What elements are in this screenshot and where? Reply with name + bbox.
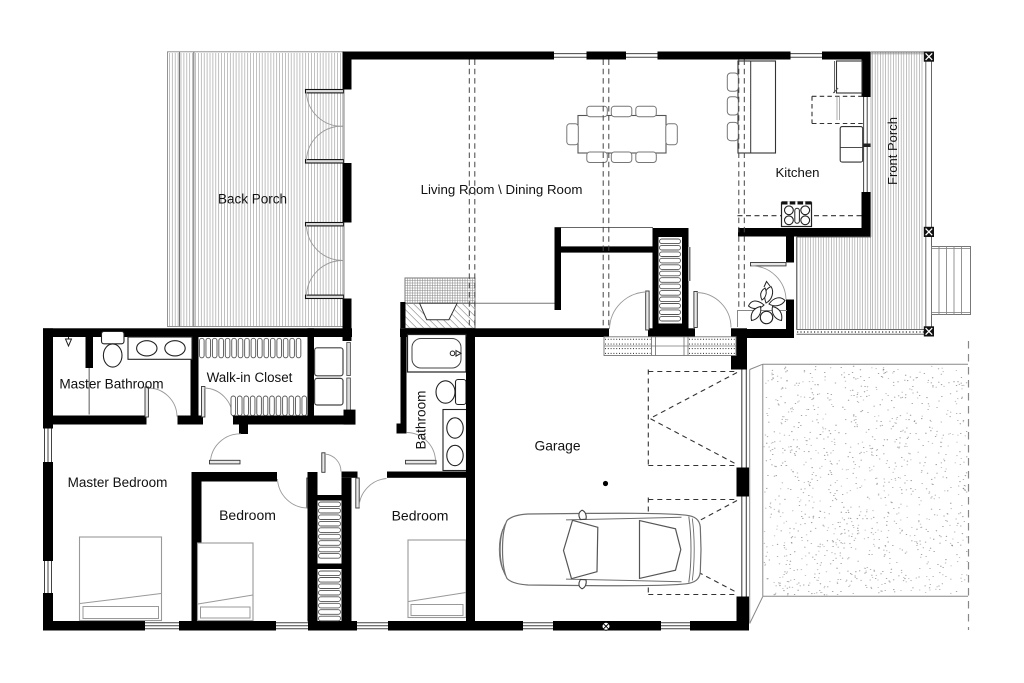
svg-text:Walk-in Closet: Walk-in Closet (207, 370, 293, 385)
svg-text:Master Bathroom: Master Bathroom (59, 377, 163, 392)
svg-text:Back Porch: Back Porch (218, 192, 287, 207)
svg-text:Garage: Garage (534, 439, 580, 454)
svg-text:Bedroom: Bedroom (219, 507, 276, 523)
svg-text:Bathroom: Bathroom (414, 391, 429, 450)
svg-text:Master Bedroom: Master Bedroom (68, 475, 168, 490)
svg-text:Living Room \ Dining Room: Living Room \ Dining Room (421, 182, 583, 197)
svg-text:Kitchen: Kitchen (776, 165, 820, 180)
svg-text:Front Porch: Front Porch (885, 117, 900, 185)
svg-text:Bedroom: Bedroom (392, 508, 449, 524)
